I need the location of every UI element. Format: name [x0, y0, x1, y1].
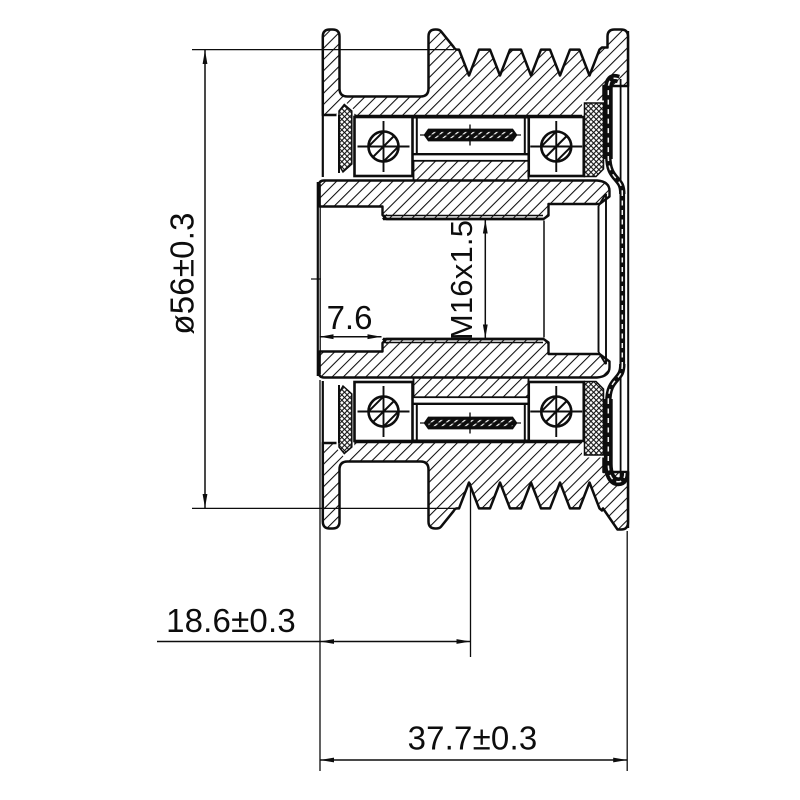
svg-text:7.6: 7.6 [327, 299, 373, 336]
svg-text:ø56±0.3: ø56±0.3 [164, 212, 201, 334]
svg-text:18.6±0.3: 18.6±0.3 [166, 602, 296, 639]
svg-text:M16x1.5: M16x1.5 [444, 220, 479, 340]
svg-text:37.7±0.3: 37.7±0.3 [408, 720, 538, 757]
